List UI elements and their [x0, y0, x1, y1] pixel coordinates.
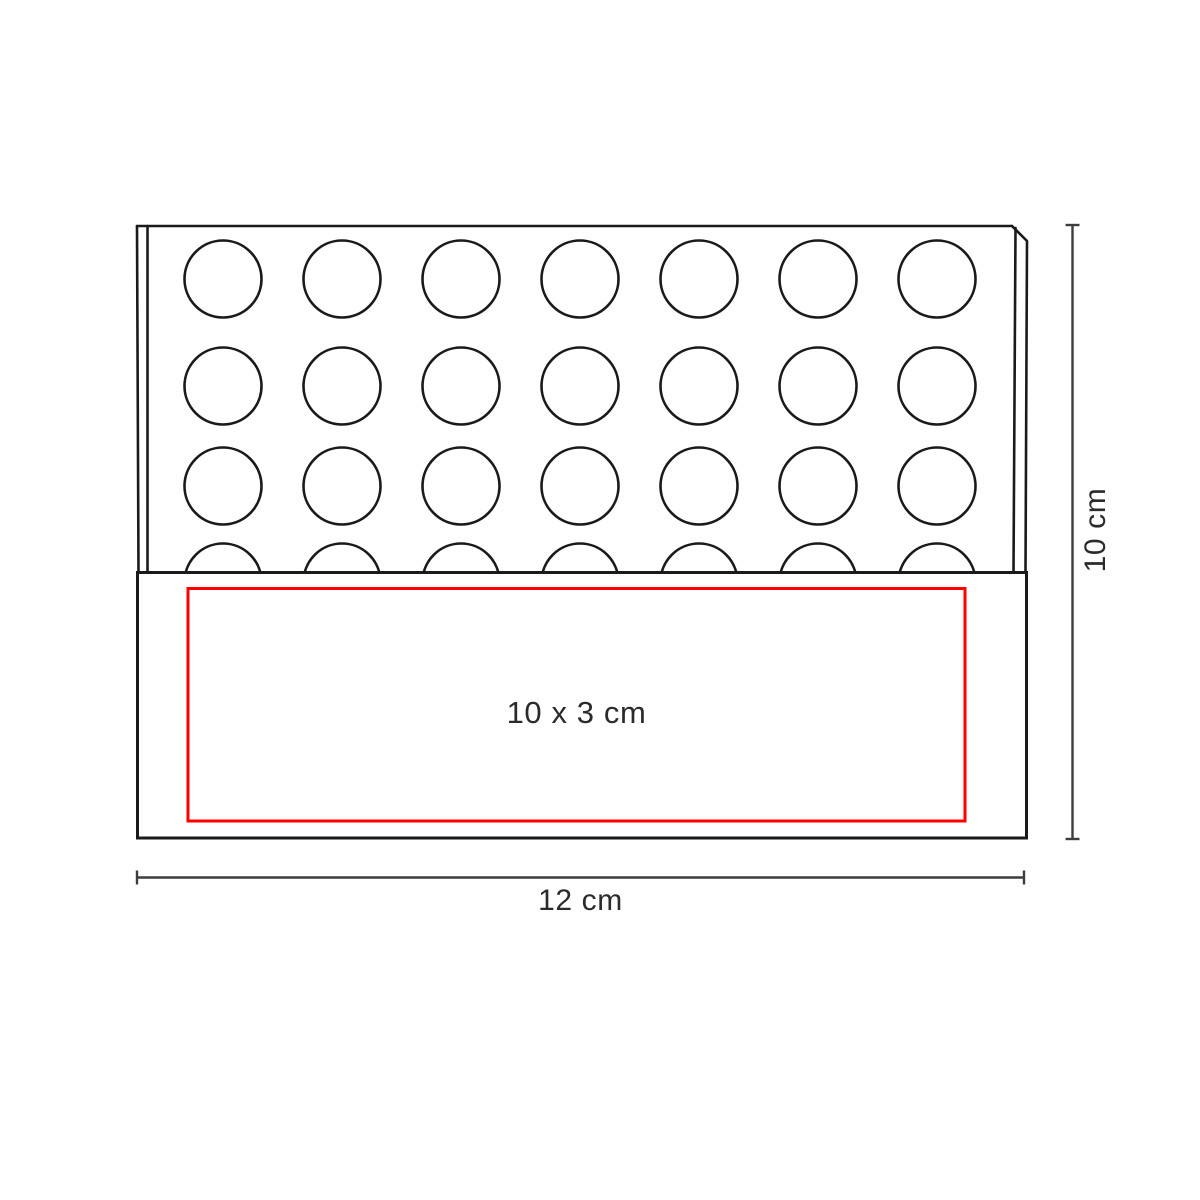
hole-circle — [780, 348, 857, 425]
hole-circle — [780, 241, 857, 318]
hole-circle — [304, 448, 381, 525]
board-left-edge-outer — [137, 226, 139, 572]
hole-circle — [542, 448, 619, 525]
hole-circle — [185, 448, 262, 525]
hole-circle — [423, 448, 500, 525]
hole-circle — [661, 241, 738, 318]
width-dimension-label: 12 cm — [137, 886, 1024, 916]
hole-circle — [542, 241, 619, 318]
hole-circle — [423, 348, 500, 425]
hole-circle — [304, 241, 381, 318]
hole-circle — [304, 348, 381, 425]
hole-circle — [899, 448, 976, 525]
board-panel — [137, 226, 1027, 572]
product-dimension-diagram: 10 x 3 cm 12 cm 10 cm — [0, 0, 1200, 1200]
height-dimension-label: 10 cm — [1076, 450, 1116, 610]
hole-circle — [185, 241, 262, 318]
width-dimension — [137, 871, 1024, 885]
hole-circle — [661, 448, 738, 525]
hole-circle — [661, 348, 738, 425]
print-area-label: 10 x 3 cm — [188, 588, 965, 821]
hole-circle — [899, 241, 976, 318]
hole-circle — [185, 348, 262, 425]
holes-grid — [185, 241, 976, 621]
hole-circle — [423, 241, 500, 318]
hole-circle — [542, 348, 619, 425]
board-right-edge-inner — [1014, 228, 1016, 572]
hole-circle — [899, 348, 976, 425]
hole-circle — [780, 448, 857, 525]
